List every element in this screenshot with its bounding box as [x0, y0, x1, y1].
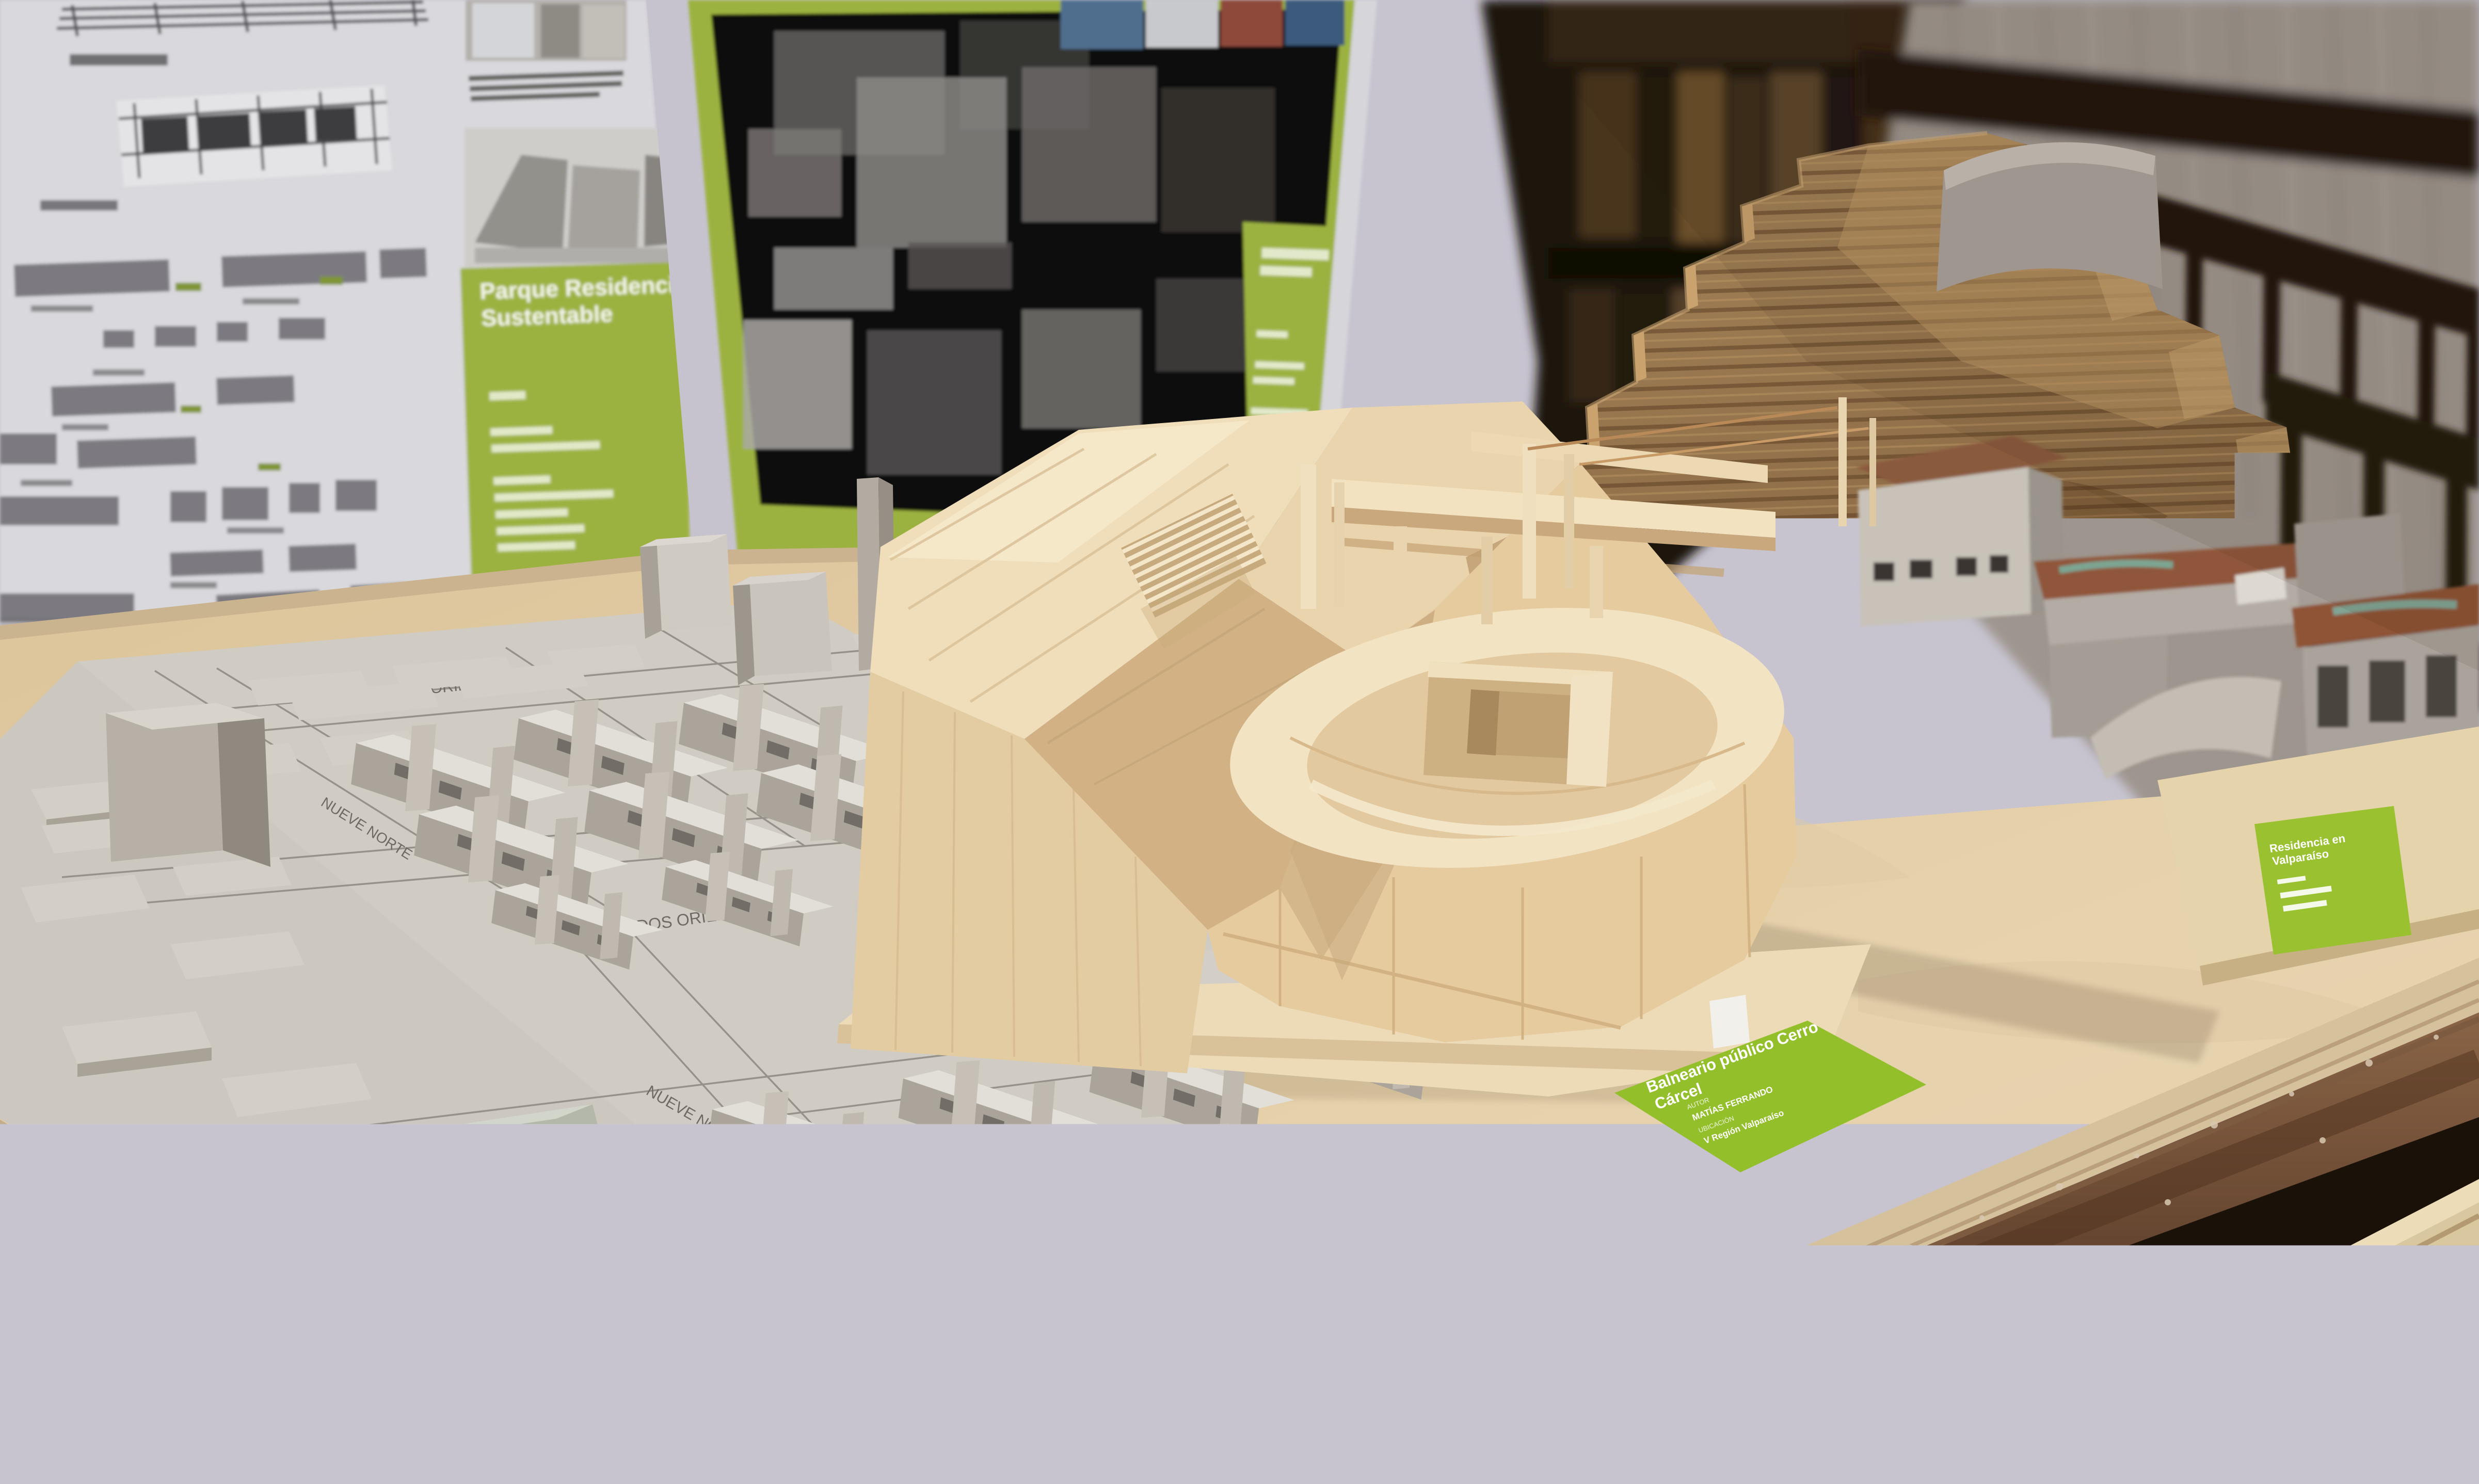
svg-text:Sustentable: Sustentable [481, 300, 614, 331]
